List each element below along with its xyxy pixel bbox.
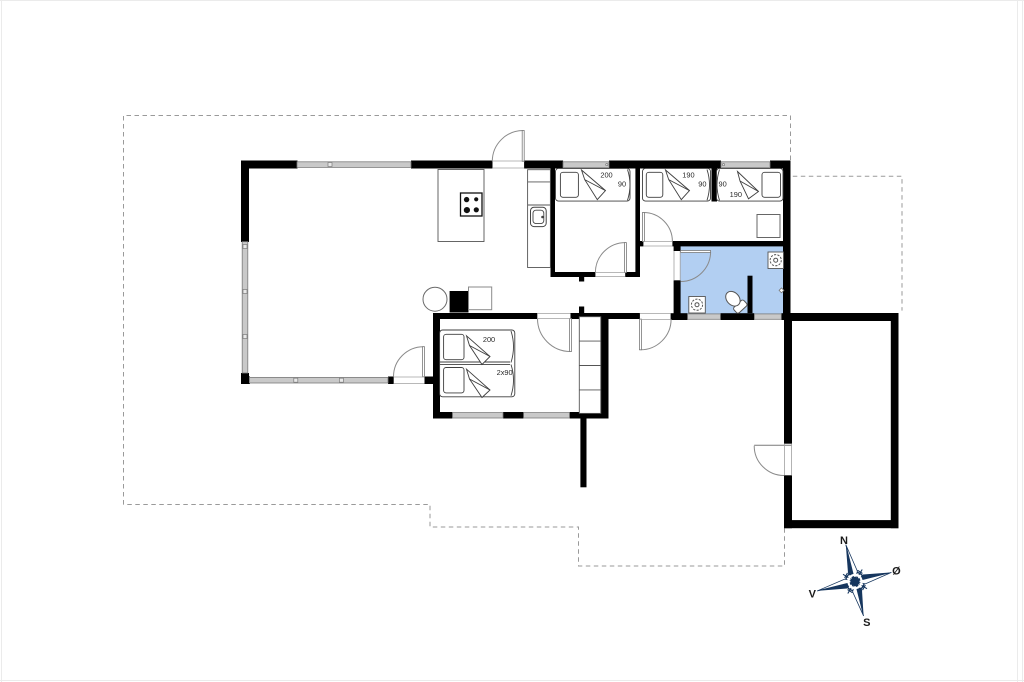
svg-text:Ø: Ø bbox=[892, 566, 901, 578]
svg-text:90: 90 bbox=[698, 179, 706, 188]
svg-text:200: 200 bbox=[600, 171, 612, 180]
svg-text:2x90: 2x90 bbox=[497, 368, 513, 377]
svg-text:S: S bbox=[863, 617, 870, 629]
svg-text:N: N bbox=[840, 535, 848, 547]
svg-text:190: 190 bbox=[730, 190, 742, 199]
svg-text:90: 90 bbox=[618, 179, 626, 188]
svg-text:200: 200 bbox=[483, 335, 495, 344]
svg-text:V: V bbox=[809, 589, 817, 601]
svg-text:90: 90 bbox=[718, 179, 726, 188]
svg-text:190: 190 bbox=[682, 171, 694, 180]
